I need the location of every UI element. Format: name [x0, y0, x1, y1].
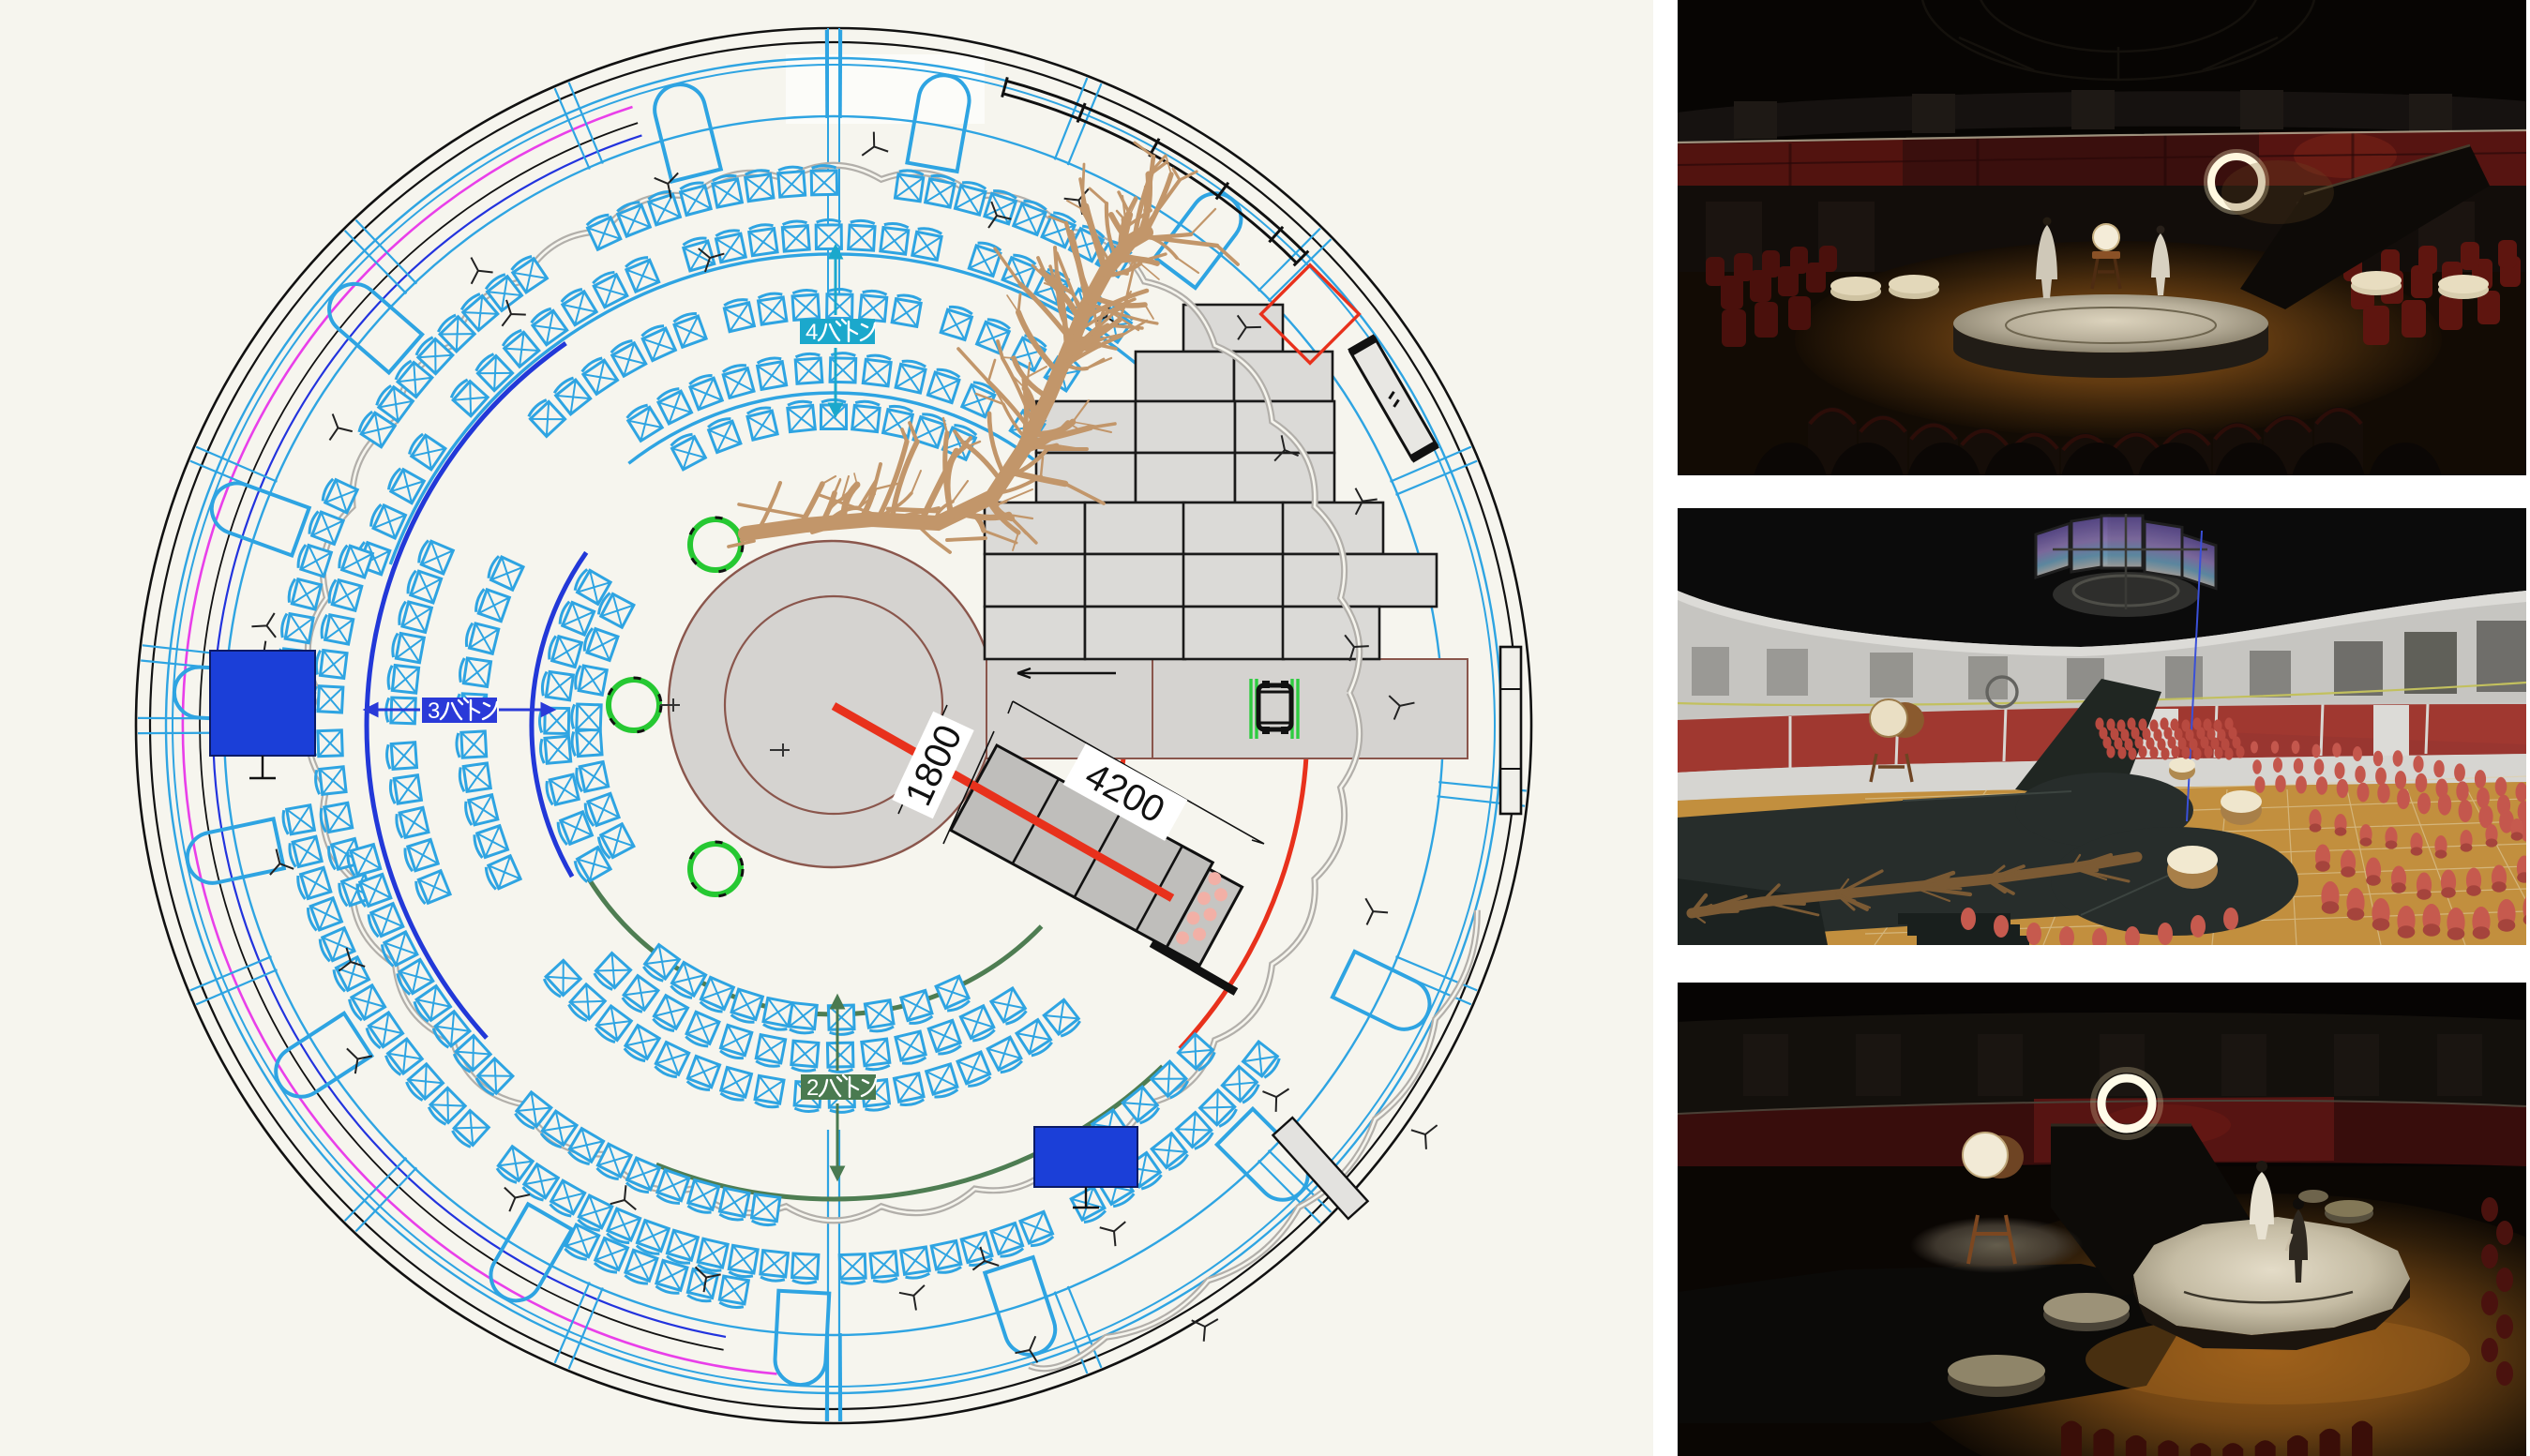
- svg-text:4: 4: [806, 320, 818, 345]
- svg-text:3: 3: [428, 698, 440, 724]
- svg-text:2: 2: [806, 1075, 819, 1101]
